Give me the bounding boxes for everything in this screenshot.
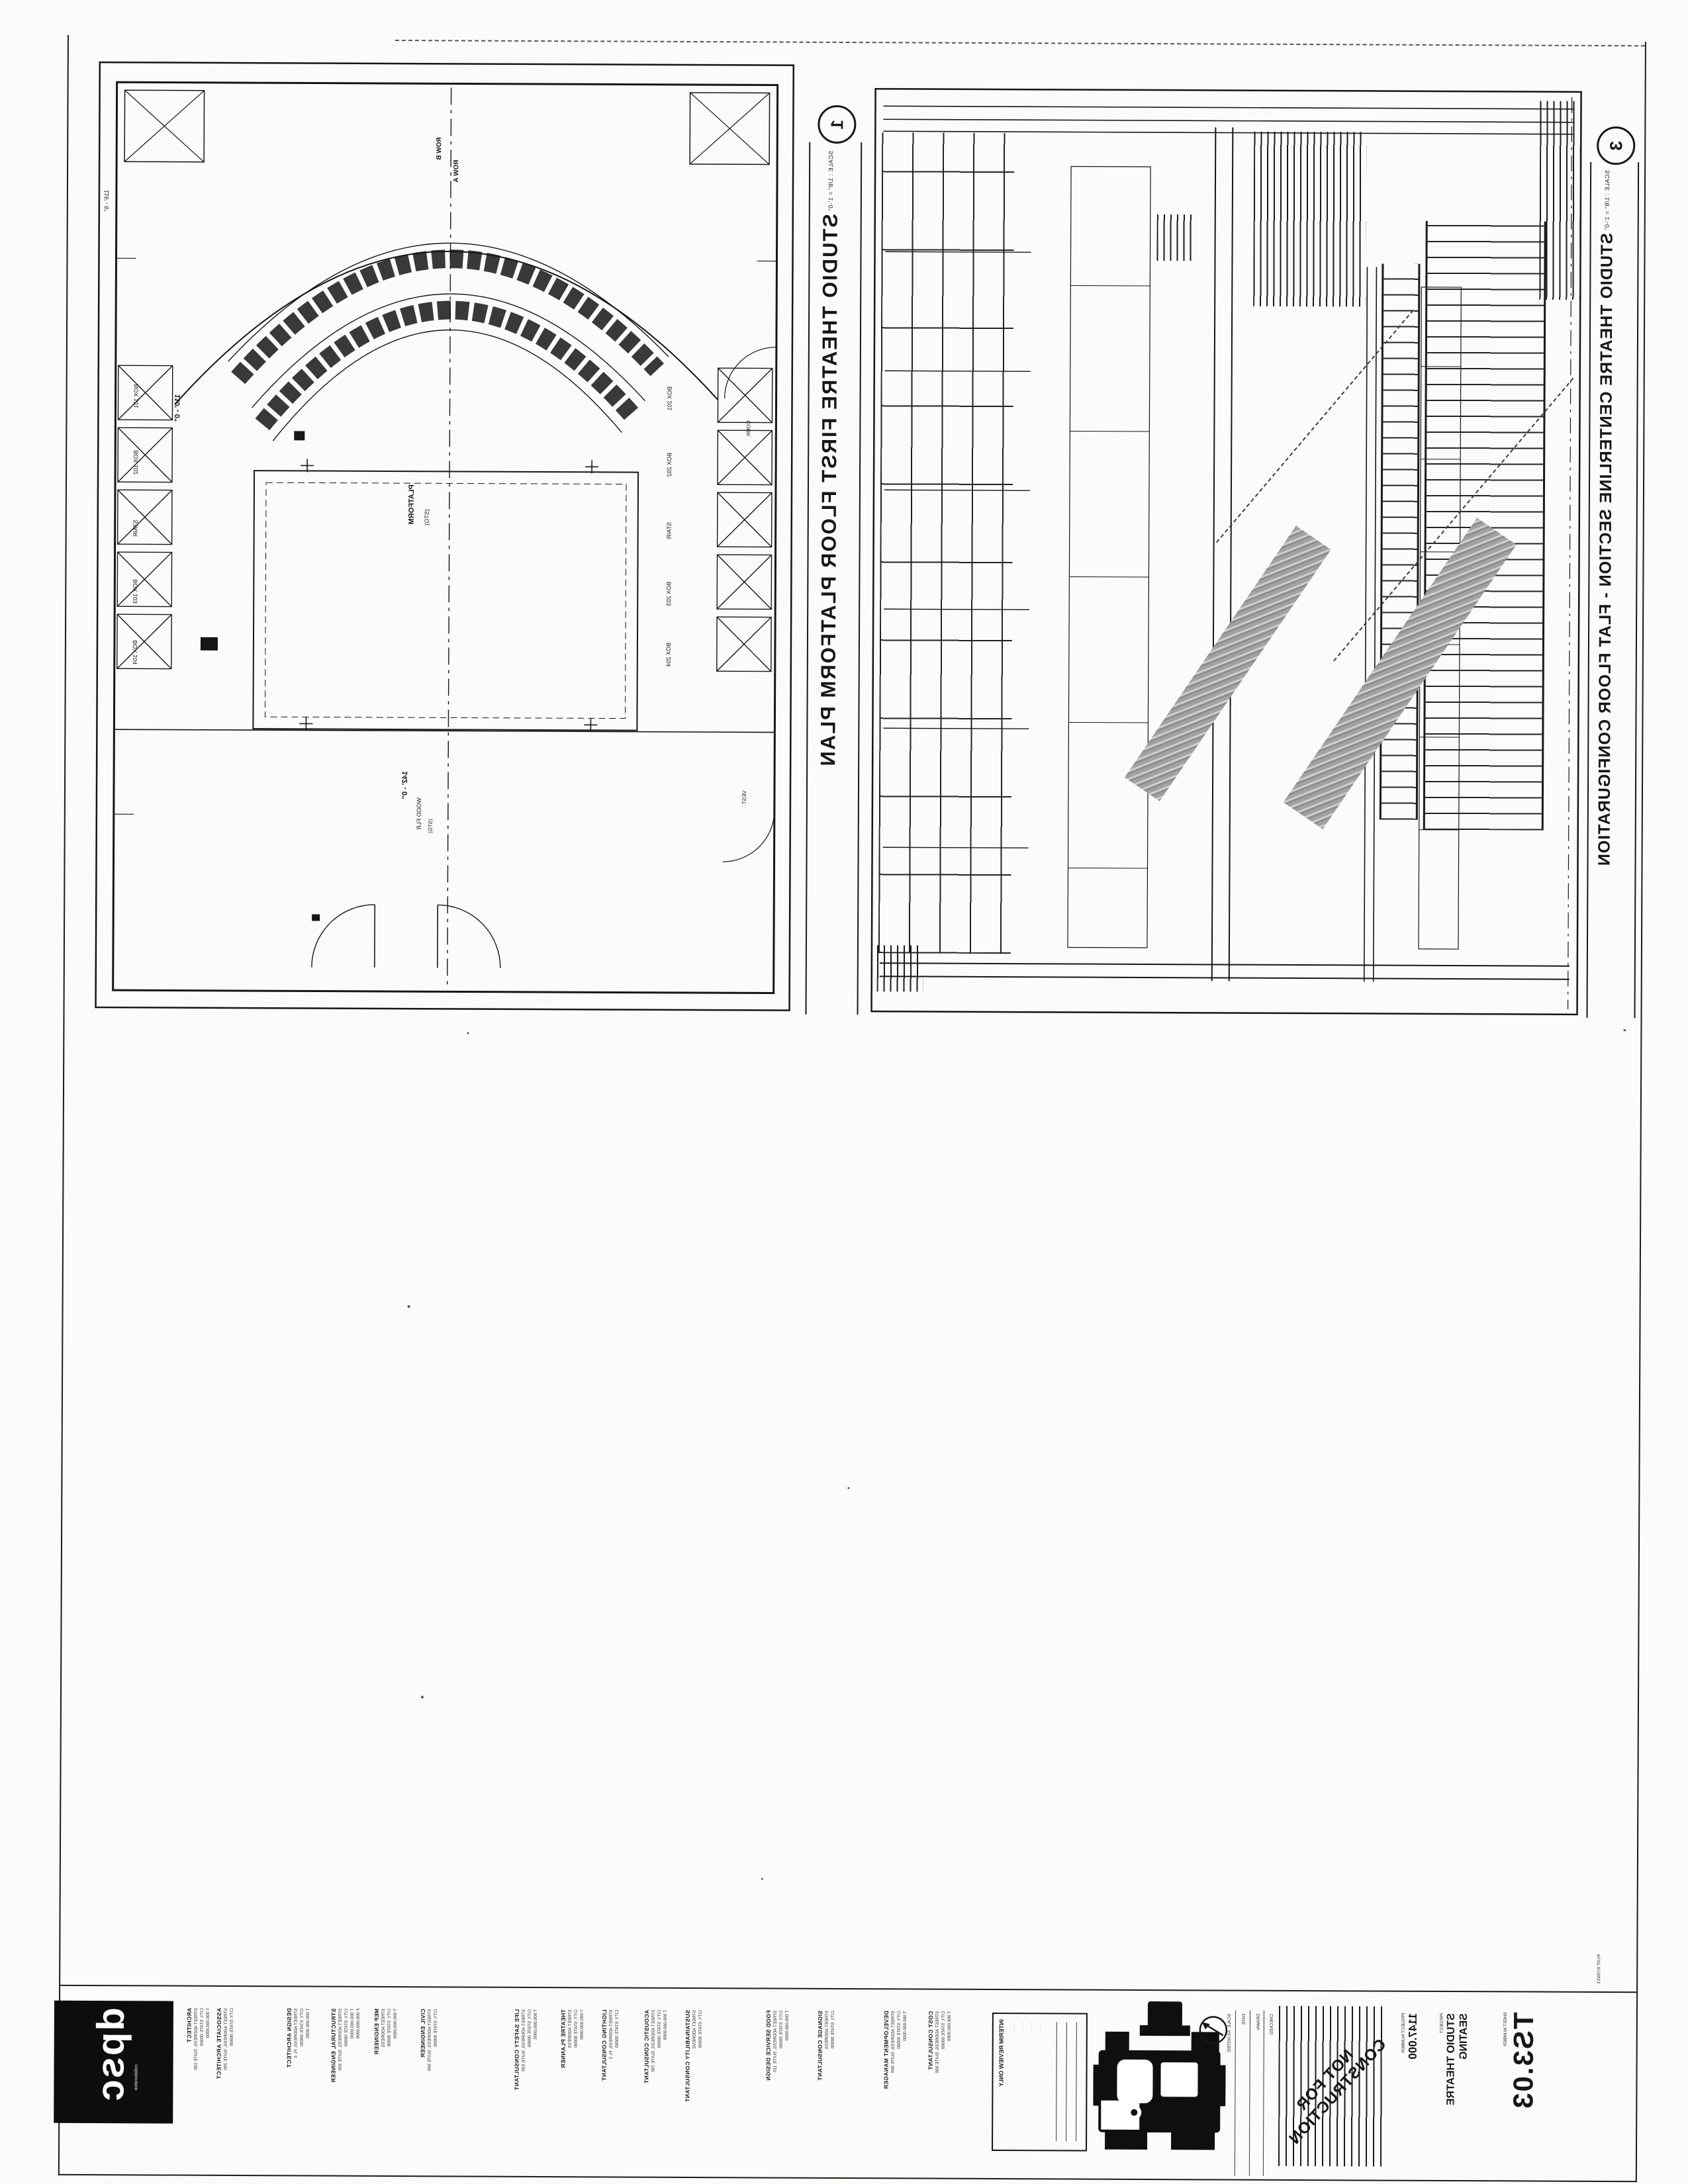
scan-speck: [408, 1305, 410, 1308]
plan-box-right-1: BOX 201: [666, 387, 673, 411]
consultant-header: SIGNAGE CONSULTANT: [816, 2011, 823, 2081]
consultant-line: STREET ADDRESS, SUITE 900: [427, 2009, 433, 2071]
title-bar-1-line-b: [857, 142, 863, 1015]
field-drawn: DRAWN: [1256, 2014, 1262, 2032]
plan-label-row-a: ROW A: [453, 159, 461, 182]
consultant-header: DESIGN ARCHITECT: [286, 2008, 293, 2068]
title-bar-1-line-a: [806, 142, 811, 1015]
consultant-line: STREET ADDRESS, SUITE 700: [650, 2010, 656, 2084]
consultant-theatre-planner: THEATRE PLANNER STREET ADDRESS CITY, STA…: [560, 2009, 585, 2068]
consultant-line: STREET ADDRESS, SUITE 100: [193, 2008, 199, 2070]
consultant-line: T 000.000.0000: [902, 2011, 908, 2089]
consultant-life-safety: LIFE SAFETY CONSULTANT STREET ADDRESS, S…: [513, 2009, 539, 2091]
scan-speck: [421, 1696, 424, 1698]
plot-stamp: PLOT 07/26/13: [1597, 1954, 1602, 1983]
consultant-acoustic: ACOUSTIC CONSULTANT STREET ADDRESS, SUIT…: [643, 2010, 668, 2084]
plan-label-corr: CORR.: [745, 420, 752, 437]
consultant-header: MEP ENGINEER: [373, 2009, 381, 2055]
floor-plan-viewport: [93, 60, 796, 1013]
consultant-header: COST CONSULTANT: [927, 2011, 935, 2073]
consultant-line: CITY, STATE 00000: [656, 2010, 662, 2084]
not-for-construction-stamp: NOT FOR CONSTRUCTION: [1278, 2006, 1385, 2167]
dpsc-logo-text: dpsc: [89, 2007, 132, 2103]
interim-rule: [1066, 2022, 1067, 2141]
plan-label-vest: VEST.: [741, 790, 748, 805]
drawing-2-scale: SCALE : 1/8" = 1'-0": [1603, 170, 1611, 230]
consultant-line: CITY, STATE 00000: [199, 2008, 205, 2070]
consultant-line: T 000.000.0000: [579, 2009, 585, 2068]
plan-box-left-2: BOX 102: [132, 450, 140, 475]
plan-box-left-4: BOX 103: [132, 579, 139, 604]
consultant-line: STREET ADDRESS: [823, 2011, 829, 2081]
consultant-line: STREET ADDRESS: [381, 2009, 387, 2055]
consultant-line: CITY, STATE 00000: [228, 2008, 234, 2079]
plan-box-right-2: BOX 202: [666, 453, 673, 477]
section-left-grid-structure: [878, 132, 1014, 954]
plan-label-wood: WOOD FLR: [416, 797, 423, 830]
consultant-sustainability: SUSTAINABILITY CONSULTANT STREET ADDRESS…: [684, 2010, 704, 2102]
consultant-line: CITY, STATE 00000: [573, 2009, 579, 2068]
title-bar-2-line-b: [1634, 162, 1639, 1018]
plan-box-right-4: BOX 203: [665, 582, 673, 606]
project-title-field: PROJECT STUDIO THEATRE SEATING: [1438, 2013, 1470, 2105]
consultant-line: CITY, STATE 00000: [829, 2011, 835, 2081]
consultant-line: STREET ADDRESS: [567, 2009, 573, 2068]
plan-box-right-5: BOX 204: [665, 643, 673, 667]
consultant-line: CITY, STATE 00000: [387, 2009, 393, 2055]
interim-row: · · · · ·: [1012, 2022, 1017, 2033]
scan-speck: [761, 1878, 763, 1880]
consultant-line: T 000.000.0000: [305, 2008, 311, 2068]
interim-review-box: INTERIM REVIEW ONLY · · · · · · · · · · …: [992, 2013, 1088, 2152]
drawing-2-title: STUDIO THEATRE CENTERLINE SECTION - FLAT…: [1595, 233, 1616, 866]
stamp-text: NOT FOR CONSTRUCTION: [1273, 2025, 1390, 2148]
consultant-line: STREET ADDRESS, FL 2: [608, 2009, 614, 2081]
sheet-border-top-dashed: [395, 40, 1645, 46]
consultant-structural: STRUCTURAL ENGINEER STREET ADDRESS, SUIT…: [330, 2009, 361, 2083]
field-rule: [1263, 2011, 1264, 2176]
sheet-border-bottom: [58, 2174, 1637, 2182]
titleblock-divider: [59, 1985, 1638, 1993]
plan-box-left-5: BOX 104: [132, 640, 139, 664]
scan-speck: [467, 1032, 469, 1034]
consultant-mep: MEP ENGINEER STREET ADDRESS CITY, STATE …: [373, 2009, 399, 2055]
field-checked: CHECKED: [1270, 2014, 1275, 2037]
consultant-line: STREET ADDRESS, FL 4: [293, 2008, 299, 2068]
plan-dim-110: 110' - 0": [173, 394, 182, 422]
field-rule: [1235, 2011, 1236, 2176]
plan-box-right-3: STAIR: [666, 522, 673, 539]
consultant-civil: CIVIL ENGINEER STREET ADDRESS, SUITE 900…: [420, 2009, 439, 2071]
consultant-development-manager: DEVELOPMENT MANAGER STREET ADDRESS, SUIT…: [882, 2011, 908, 2089]
project-number-label: PROJECT NUMBER: [1401, 2013, 1407, 2060]
consultant-line: CITY, STATE 00000: [941, 2011, 947, 2073]
plan-label-stg: (STG): [424, 509, 431, 525]
field-scale: SCALE AS NOTED: [1227, 2014, 1233, 2052]
consultant-line: T 000.000.0000: [205, 2008, 211, 2070]
scanned-drawing-sheet: ROW B ROW A 110' - 0" 116' - 6" BOX 101 …: [0, 0, 1688, 2184]
drawing-1-title-block: SCALE : 1/8" = 1'-0" STUDIO THEATRE FIRS…: [817, 151, 844, 768]
sheet: ROW B ROW A 110' - 0" 116' - 6" BOX 101 …: [0, 0, 1688, 2184]
drawing-2-number: 3: [1607, 141, 1624, 151]
section-viewport: [869, 86, 1584, 1017]
consultant-line: T 000.000.0000: [532, 2009, 539, 2091]
plan-dim-116: 116' - 6": [103, 190, 111, 211]
plan-dim-142: 142' - 0": [401, 771, 410, 799]
dpsc-logo-caption: collaborative: [133, 2064, 139, 2090]
consultant-header: SUSTAINABILITY CONSULTANT: [684, 2010, 692, 2102]
interim-review-header: INTERIM REVIEW ONLY: [997, 2019, 1005, 2087]
field-rule: [1249, 2011, 1250, 2176]
consultant-signage: SIGNAGE CONSULTANT STREET ADDRESS CITY, …: [816, 2011, 835, 2081]
consultant-header: ACOUSTIC CONSULTANT: [643, 2010, 650, 2084]
interim-rule: [1056, 2022, 1057, 2141]
consultant-line: CITY, STATE 00000: [778, 2011, 784, 2081]
project-title-line-2: SEATING: [1457, 2013, 1470, 2105]
consultant-architect: ARCHITECT STREET ADDRESS, SUITE 100 CITY…: [186, 2008, 211, 2070]
scan-speck: [1623, 1029, 1626, 1031]
plan-label-stg2: (STG): [428, 819, 434, 833]
consultant-header: STRUCTURAL ENGINEER: [330, 2009, 337, 2083]
north-arrow-icon: [1197, 2013, 1230, 2046]
sheet-border-left: [58, 35, 69, 2175]
plan-box-left-3: STAIR: [132, 520, 140, 537]
consultant-header: LIFE SAFETY CONSULTANT: [513, 2009, 521, 2091]
plan-label-row-b: ROW B: [436, 137, 444, 160]
consultant-line: STREET ADDRESS, SUITE 600: [935, 2011, 941, 2073]
consultant-line: CITY, STATE 00000: [697, 2010, 704, 2102]
section-corner-hatch: [877, 945, 923, 991]
consultant-header: ASSOCIATE ARCHITECT: [215, 2008, 222, 2079]
drawing-1-title: STUDIO THEATRE FIRST FLOOR PLATFORM PLAN: [817, 214, 842, 768]
consultant-header: CIVIL ENGINEER: [420, 2009, 427, 2071]
consultant-line: T 000.000.0000: [393, 2009, 399, 2055]
consultant-line: T 000.000.0000: [947, 2011, 953, 2073]
drawing-1-number-bubble: 1: [818, 105, 856, 144]
section-curtain-hatch-3: [1156, 214, 1195, 261]
consultant-line: STREET ADDRESS, SUITE 200: [222, 2008, 228, 2079]
drawing-2-title-block: SCALE : 1/8" = 1'-0" STUDIO THEATRE CENT…: [1595, 170, 1620, 867]
interim-row: · · · · ·: [1038, 2022, 1043, 2033]
consultant-line: T 000.000.0000: [662, 2010, 668, 2084]
field-date: DATE: [1242, 2014, 1247, 2028]
sheet-number-value: TS3.03: [1508, 2012, 1539, 2110]
consultant-header: THEATRE PLANNER: [560, 2009, 567, 2068]
floor-plan-drawing: [93, 60, 796, 1013]
dpsc-logo-block: dpsc collaborative: [54, 2001, 173, 2124]
consultant-line: F 000.000.0000: [355, 2009, 361, 2083]
consultant-line: STREET ADDRESS, SUITE 110: [772, 2011, 778, 2081]
consultant-line: CITY, STATE 00000: [343, 2009, 349, 2083]
consultant-lighting: LIGHTING CONSULTANT STREET ADDRESS, FL 2…: [600, 2009, 620, 2081]
consultant-line: CITY, STATE 00000: [299, 2008, 305, 2068]
consultant-header: DEVELOPMENT MANAGER: [882, 2011, 890, 2089]
interim-row: · · · · ·: [1021, 2022, 1026, 2033]
sheet-number-field: SHEET NUMBER TS3.03: [1502, 2012, 1539, 2110]
section-curtain-hatch-1: [1253, 132, 1366, 307]
consultant-line: STREET ADDRESS, SUITE 300: [337, 2009, 343, 2083]
consultant-cost: COST CONSULTANT STREET ADDRESS, SUITE 60…: [927, 2011, 953, 2073]
consultant-associate-architect: ASSOCIATE ARCHITECT STREET ADDRESS, SUIT…: [215, 2008, 234, 2079]
project-title-line-1: STUDIO THEATRE: [1444, 2013, 1458, 2105]
consultant-header: FOOD SERVICE DESIGN: [765, 2010, 772, 2081]
drawing-1-number: 1: [828, 120, 845, 130]
consultant-line: CITY, STATE 00000: [614, 2009, 620, 2081]
plan-box-left-1: BOX 101: [132, 384, 140, 408]
consultant-design-architect: DESIGN ARCHITECT STREET ADDRESS, FL 4 CI…: [286, 2008, 311, 2068]
consultant-line: CITY, STATE 00000: [433, 2009, 439, 2071]
title-bar-2-line-a: [1586, 162, 1591, 1018]
scan-speck: [847, 1487, 849, 1489]
plan-label-platform: PLATFORM: [408, 484, 416, 524]
interim-rule: [1076, 2023, 1077, 2142]
consultant-header: LIGHTING CONSULTANT: [600, 2009, 608, 2081]
consultant-line: T 000.000.0000: [349, 2009, 355, 2083]
consultant-header: ARCHITECT: [186, 2008, 193, 2070]
drawing-1-scale: SCALE : 1/8" = 1'-0": [827, 151, 835, 211]
stamp-line-1: NOT FOR: [1273, 2025, 1377, 2136]
interim-row: · · · · ·: [1029, 2022, 1035, 2033]
consultant-line: T 000.000.0000: [784, 2011, 790, 2081]
consultant-food-service: FOOD SERVICE DESIGN STREET ADDRESS, SUIT…: [765, 2010, 790, 2081]
project-number-field: PROJECT NUMBER 1147.000: [1401, 2013, 1420, 2060]
project-number-value: 1147.000: [1407, 2013, 1420, 2060]
drawing-2-number-bubble: 3: [1597, 126, 1635, 165]
